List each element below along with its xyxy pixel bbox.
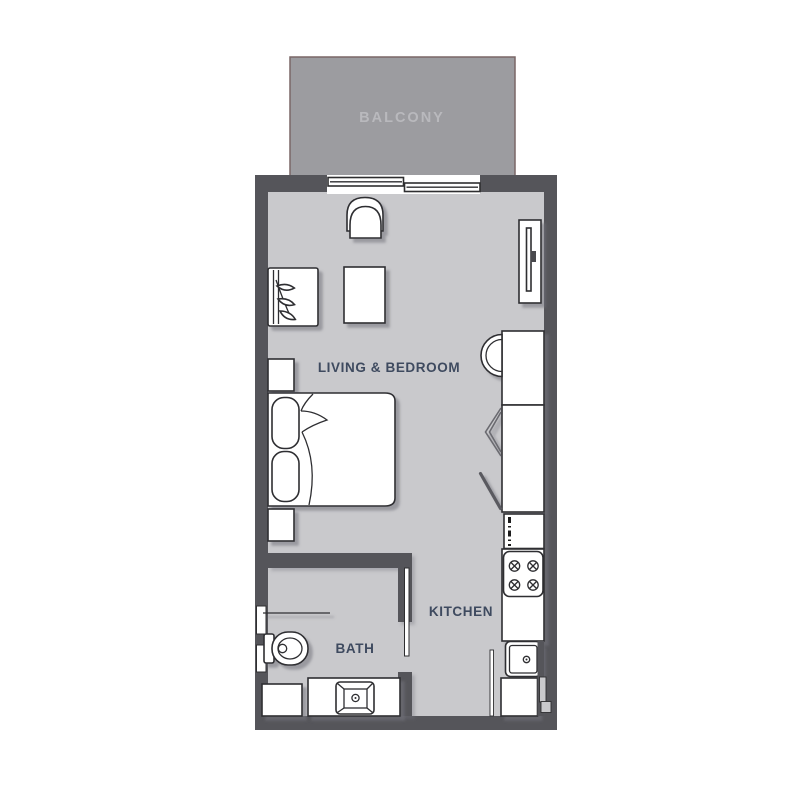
bed-pillow-1 [272,398,299,449]
kitchen-sink [506,642,542,677]
tv-mount [531,251,537,262]
stove-4-burner [504,552,544,597]
wall-right [544,175,557,730]
shaft-notch-bar [540,677,547,702]
vanity [308,678,400,716]
counter-mid [502,405,544,512]
counter-upper [502,331,544,405]
double-bed [268,393,395,506]
floor-plan-svg: BALCONY [0,0,800,800]
vanity-drain-dot [355,697,357,699]
base-cabinet [501,678,538,716]
sink-drain-dot [526,659,528,661]
armchair-with-plant [268,268,318,326]
balcony-label: BALCONY [359,110,445,126]
bed-pillow-2 [272,452,299,502]
floor-plan: BALCONY [0,0,800,800]
bath-wall-top [268,553,412,568]
balcony-area: BALCONY [290,57,515,176]
balcony-sliding-door [327,175,480,194]
living-bedroom-label: LIVING & BEDROOM [318,360,460,375]
wall-bottom [255,716,557,730]
side-table [344,267,385,323]
nightstand-top [268,359,294,391]
shower-tray [262,684,302,716]
shaft-notch-square [541,702,551,713]
lounge-chair-seat [350,207,381,239]
stove-top [504,552,544,597]
nightstand-bottom [268,509,294,541]
lounge-chair [347,198,383,239]
kitchen-label: KITCHEN [429,604,493,619]
shaft-opening-upper [257,606,267,634]
toilet [264,632,308,665]
kitchen-wall-fin [490,650,494,716]
tv-screen [527,228,532,291]
tv-unit [519,220,541,303]
bath-pocket-door [405,568,410,656]
bath-label: BATH [336,641,375,656]
